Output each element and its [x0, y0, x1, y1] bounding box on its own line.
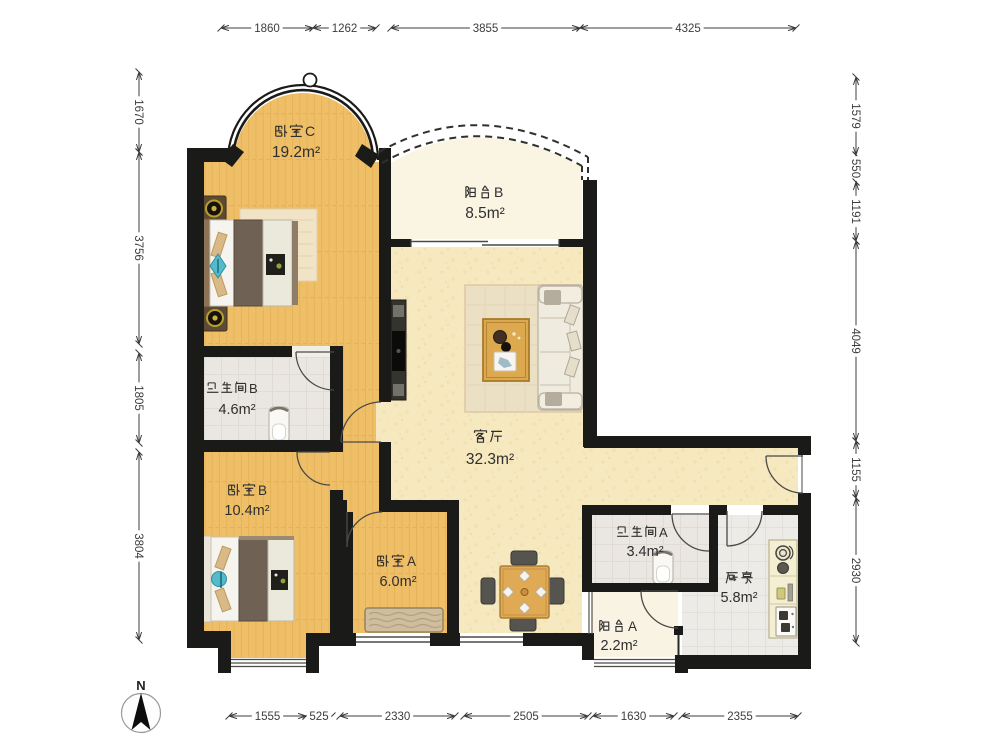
svg-text:1555: 1555	[255, 711, 281, 723]
svg-text:2330: 2330	[385, 711, 411, 723]
svg-text:1155: 1155	[849, 457, 861, 482]
svg-text:10.4m²: 10.4m²	[224, 503, 269, 519]
svg-text:2505: 2505	[513, 711, 539, 723]
svg-text:3.4m²: 3.4m²	[626, 544, 663, 560]
svg-text:3855: 3855	[473, 23, 499, 35]
svg-text:4049: 4049	[849, 328, 861, 354]
svg-text:2.2m²: 2.2m²	[600, 638, 637, 654]
svg-text:1262: 1262	[332, 23, 358, 35]
svg-text:A: A	[628, 619, 637, 634]
svg-text:1630: 1630	[621, 711, 647, 723]
svg-text:2355: 2355	[727, 711, 753, 723]
svg-text:B: B	[249, 381, 258, 396]
svg-text:3756: 3756	[132, 235, 144, 261]
svg-text:8.5m²: 8.5m²	[465, 205, 505, 222]
svg-text:19.2m²: 19.2m²	[272, 144, 320, 161]
svg-text:32.3m²: 32.3m²	[466, 451, 514, 468]
svg-text:4325: 4325	[675, 23, 701, 35]
svg-text:N: N	[136, 678, 145, 693]
svg-text:B: B	[258, 483, 267, 498]
svg-text:1860: 1860	[254, 23, 280, 35]
svg-text:C: C	[305, 123, 315, 139]
svg-text:1805: 1805	[132, 385, 144, 411]
svg-text:3804: 3804	[132, 533, 144, 559]
svg-text:A: A	[659, 525, 668, 540]
svg-text:A: A	[407, 554, 416, 569]
svg-text:4.6m²: 4.6m²	[218, 402, 255, 418]
svg-text:525: 525	[309, 711, 328, 723]
svg-text:1579: 1579	[849, 103, 861, 129]
svg-text:1191: 1191	[849, 199, 861, 224]
svg-text:2930: 2930	[849, 558, 861, 584]
svg-text:550: 550	[849, 159, 861, 178]
svg-text:B: B	[494, 184, 503, 200]
svg-text:5.8m²: 5.8m²	[720, 590, 757, 606]
svg-text:6.0m²: 6.0m²	[379, 574, 416, 590]
svg-text:1670: 1670	[132, 99, 144, 125]
